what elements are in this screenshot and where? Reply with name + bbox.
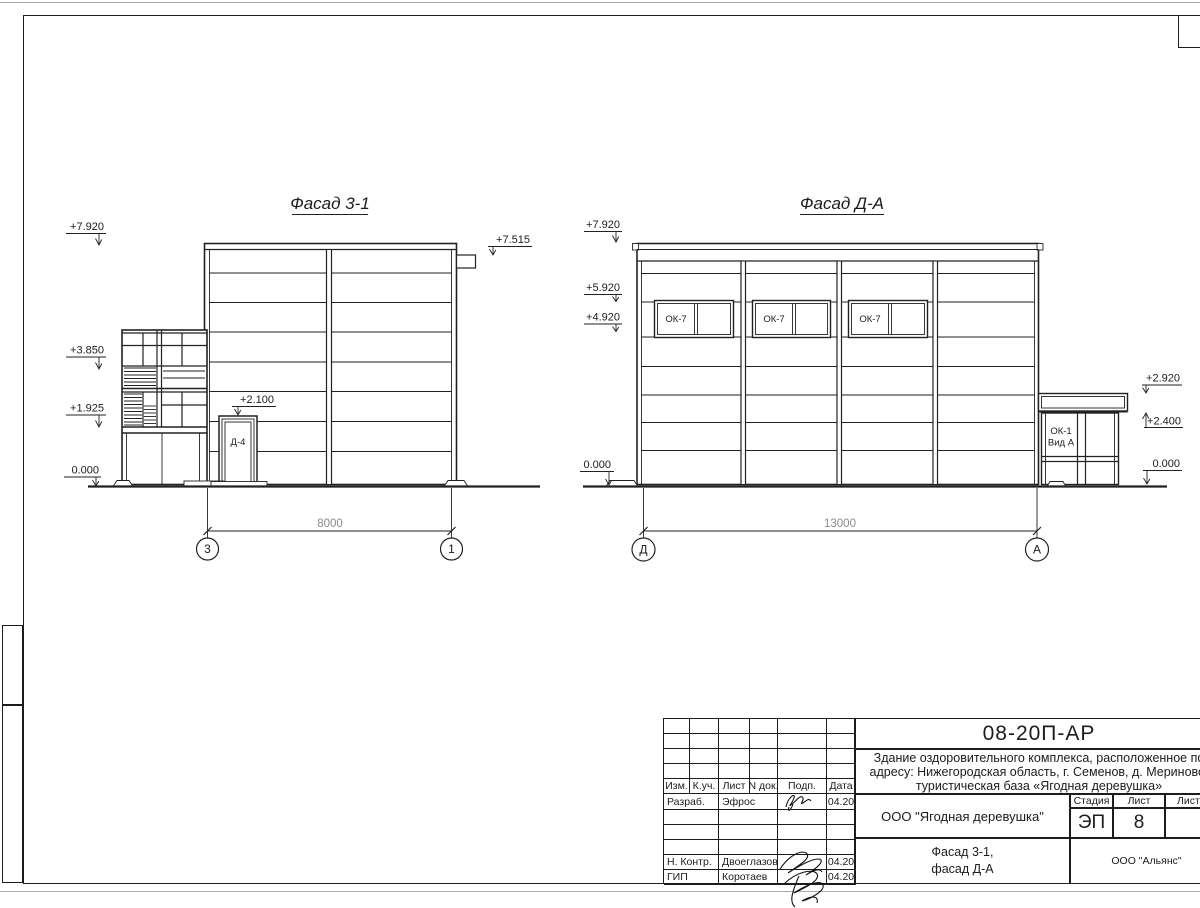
drawing-sheet: { "drawing": { "facade_left": { "title":… (0, 0, 1200, 900)
role-developer: Разраб. (664, 794, 719, 810)
role-gip: ГИП (664, 870, 719, 885)
contractor-org: ООО "Альянс" (1070, 838, 1200, 884)
name-developer: Эфрос (719, 794, 778, 810)
doc-number: 08-20П-АР (855, 718, 1200, 749)
window-ok7-2: ОК-7 (753, 301, 831, 338)
facade-left-dimension: 8000 3 1 (197, 488, 463, 560)
mark-0000-right-facade-left: 0.000 (583, 459, 611, 471)
role-ncontrol: Н. Контр. (664, 855, 719, 870)
mark-2400: +2.400 (1147, 416, 1181, 428)
mark-7920-right: +7.920 (586, 219, 620, 231)
col-kuch: К.уч. (690, 779, 719, 794)
mark-3850: +3.850 (70, 345, 104, 357)
entry-vestibule: ОК-1 Вид А (1039, 394, 1128, 485)
entry-window-label-1: ОК-1 (1050, 426, 1071, 437)
facade-right-drawing: Фасад Д-А (580, 194, 1183, 561)
sheet-value: 8 (1113, 808, 1165, 838)
mark-4920: +4.920 (586, 312, 620, 324)
mark-0000-right-facade-right: 0.000 (1152, 458, 1180, 470)
dim-13000: 13000 (824, 518, 856, 530)
margin-box-top (2, 625, 23, 705)
col-izm: Изм. (664, 779, 690, 794)
sheet-subtitle: Фасад 3-1, фасад Д-А (855, 838, 1070, 884)
door-label: Д-4 (231, 437, 246, 448)
facade-right-title: Фасад Д-А (800, 194, 884, 213)
facade-left-drawing: Фасад 3-1 (64, 194, 540, 560)
window-label-1: ОК-7 (665, 314, 686, 325)
description-line-2: адресу: Нижегородская область, г. Семено… (856, 765, 1200, 779)
facade-right-dimension: 13000 Д А (632, 488, 1049, 561)
mark-2920: +2.920 (1146, 373, 1180, 385)
stage-value: ЭП (1070, 808, 1113, 838)
paper-edge-bottom (0, 891, 1200, 892)
subtitle-line-1: Фасад 3-1, (856, 844, 1069, 861)
window-label-3: ОК-7 (859, 314, 880, 325)
signature-ncontrol (780, 852, 822, 875)
change-cell (664, 719, 690, 734)
signature-gip (784, 871, 823, 907)
description-line-3: туристическая база «Ягодная деревушка» (856, 779, 1200, 793)
entry-window-label-2: Вид А (1048, 438, 1075, 449)
stage-label: Стадия (1070, 794, 1113, 808)
roof-vent (457, 255, 476, 268)
facade-left-annex (122, 330, 207, 485)
mark-1925: +1.925 (70, 403, 104, 415)
col-list: Лист (719, 779, 750, 794)
subtitle-line-2: фасад Д-А (856, 861, 1069, 878)
margin-box-bottom (2, 705, 23, 883)
axis-label-3: 3 (204, 542, 211, 556)
mark-5920: +5.920 (586, 282, 620, 294)
dim-8000: 8000 (317, 518, 343, 530)
axis-label-1: 1 (448, 542, 455, 556)
signature-developer (786, 795, 811, 810)
project-description: Здание оздоровительного комплекса, распо… (855, 749, 1200, 794)
mark-7920-left: +7.920 (70, 221, 104, 233)
description-line-1: Здание оздоровительного комплекса, распо… (856, 751, 1200, 765)
signatures-overlay (772, 788, 857, 908)
mark-0000-left-facade: 0.000 (71, 465, 99, 477)
mark-7515: +7.515 (496, 234, 530, 246)
window-ok7-3: ОК-7 (849, 301, 928, 338)
sheets-label: Листов (1165, 794, 1200, 808)
mark-2100: +2.100 (240, 394, 274, 406)
facade-left-title: Фасад 3-1 (290, 194, 370, 213)
window-ok7-1: ОК-7 (655, 301, 734, 338)
name-ncontrol: Двоеглазов (719, 855, 778, 870)
name-gip: Коротаев (719, 870, 778, 885)
window-label-2: ОК-7 (763, 314, 784, 325)
axis-label-a: А (1033, 543, 1041, 557)
elevations-drawing: Фасад 3-1 (0, 0, 1200, 600)
sheets-value (1165, 808, 1200, 838)
axis-label-d: Д (639, 543, 647, 557)
sheet-label: Лист (1113, 794, 1165, 808)
client-org: ООО "Ягодная деревушка" (855, 794, 1070, 838)
door-d4: Д-4 (219, 416, 257, 485)
